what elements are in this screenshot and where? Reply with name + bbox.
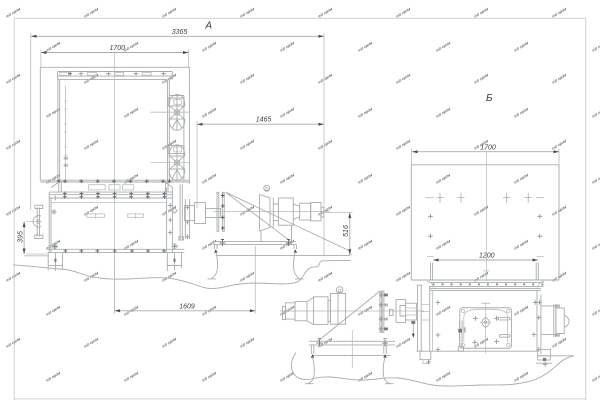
svg-text:А: А (204, 21, 212, 32)
svg-text:1700: 1700 (110, 45, 126, 52)
svg-text:1609: 1609 (179, 303, 195, 310)
svg-text:395: 395 (17, 231, 24, 243)
svg-text:3365: 3365 (172, 29, 188, 36)
svg-text:1465: 1465 (256, 117, 272, 124)
svg-text:1700: 1700 (480, 144, 496, 151)
svg-text:Б: Б (486, 93, 493, 104)
svg-text:516: 516 (343, 225, 350, 237)
